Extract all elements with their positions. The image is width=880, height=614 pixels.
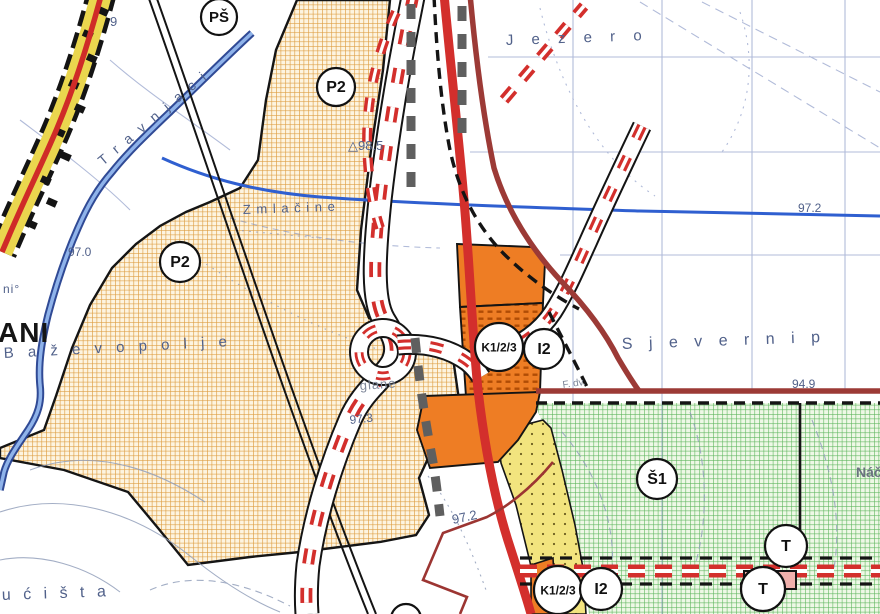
zone-label-PŠ: PŠ [201, 0, 237, 35]
place-name: J e z e r o [506, 27, 649, 49]
svg-text:Š1: Š1 [647, 469, 667, 488]
svg-text:I2: I2 [594, 581, 607, 598]
zone-label-✕: ✕ [391, 604, 421, 614]
svg-text:PŠ: PŠ [209, 8, 229, 26]
zone-label-T: T [741, 567, 785, 611]
place-name: Náč [856, 464, 880, 480]
zone-label-I2: I2 [580, 568, 622, 610]
zone-label-K1/2/3: K1/2/3 [475, 323, 523, 371]
zone-label-P2: P2 [317, 68, 355, 106]
elevation-label: 97.2 [798, 201, 822, 215]
place-name: 9 [110, 14, 117, 29]
svg-text:T: T [781, 538, 791, 555]
svg-text:P2: P2 [170, 254, 190, 271]
place-name: T r a v n j a c i [95, 67, 212, 168]
elevation-label: 94.9 [792, 377, 816, 391]
svg-text:T: T [758, 581, 768, 598]
zone-label-K1/2/3: K1/2/3 [534, 566, 582, 614]
settlement-strip [2, 0, 109, 252]
svg-text:K1/2/3: K1/2/3 [481, 340, 517, 354]
zoning-map-canvas: J e z e r oT r a v n j a c iZ m l a č i … [0, 0, 880, 614]
place-name: S j e v e r n i p [622, 329, 827, 353]
elevation-label: 97.0 [68, 245, 92, 259]
elevation-label: △98.5 [348, 138, 383, 153]
zone-label-I2: I2 [524, 329, 564, 369]
zone-label-P2: P2 [160, 242, 200, 282]
zone-label-T: T [765, 525, 807, 567]
place-name: u ć i š t a [2, 583, 111, 604]
svg-text:K1/2/3: K1/2/3 [540, 583, 576, 597]
place-name: ni° [3, 282, 20, 296]
svg-text:I2: I2 [537, 341, 550, 358]
zoning-map-viewport: J e z e r oT r a v n j a c iZ m l a č i … [0, 0, 880, 614]
elevation-label: 97.3 [349, 411, 374, 427]
zone-label-Š1: Š1 [637, 459, 677, 499]
svg-text:P2: P2 [326, 79, 346, 96]
place-name: ANI [0, 317, 49, 348]
elevation-label: 97.2 [451, 507, 479, 527]
place-name: glane [359, 375, 397, 393]
